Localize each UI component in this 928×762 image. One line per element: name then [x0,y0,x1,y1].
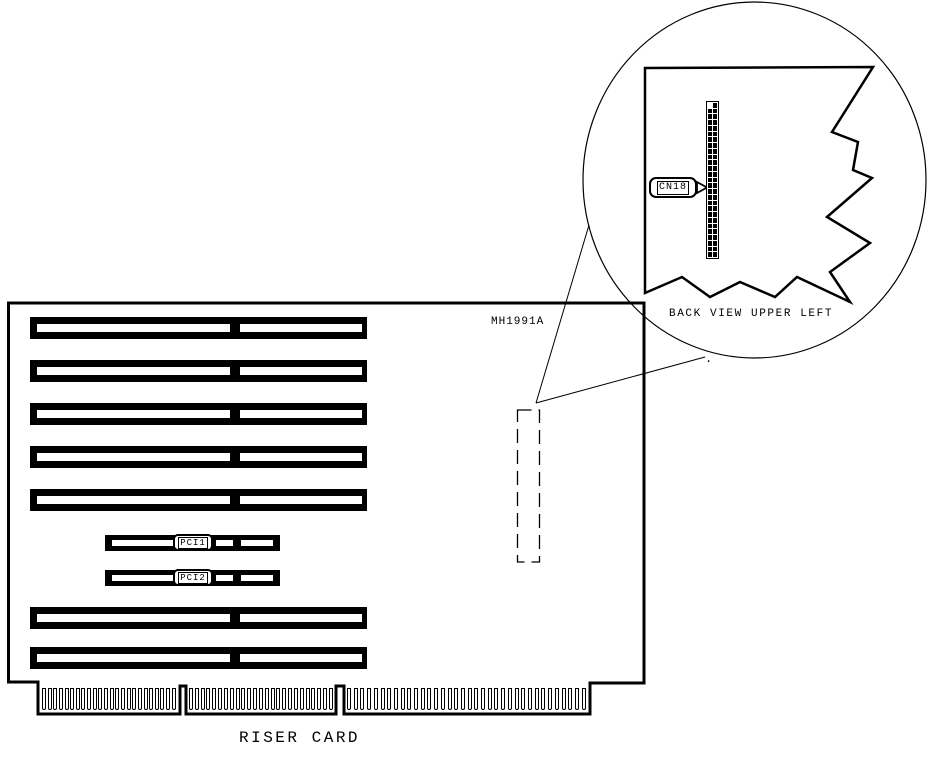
edge-finger [212,688,216,710]
pin-cell [713,178,717,183]
edge-finger [259,688,263,710]
edge-finger [448,688,452,710]
edge-finger [354,688,358,710]
pin-cell [708,235,712,240]
pin-cell [713,229,717,234]
pin-cell [713,224,717,229]
edge-finger [582,688,586,710]
edge-finger [367,688,371,710]
edge-finger [104,688,108,710]
edge-finger [121,688,125,710]
edge-finger [434,688,438,710]
edge-finger [288,688,292,710]
edge-finger [93,688,97,710]
cn18-connector-pins [706,101,719,259]
cn18-label-tag: CN18 [649,177,697,198]
pin-cell [708,218,712,223]
edge-finger [488,688,492,710]
pin-cell [713,160,717,165]
pin-cell [713,183,717,188]
pin-cell [708,166,712,171]
pin-cell [708,155,712,160]
edge-finger [166,688,170,710]
pci-slot-strip [216,540,233,546]
isa-slot-7 [30,647,367,669]
edge-finger [115,688,119,710]
edge-finger [427,688,431,710]
pci1-label: PCI1 [178,537,208,549]
edge-finger [421,688,425,710]
edge-finger [172,688,176,710]
edge-finger [323,688,327,710]
edge-finger [501,688,505,710]
edge-finger [481,688,485,710]
pin-cell [713,132,717,137]
edge-finger [110,688,114,710]
edge-finger [374,688,378,710]
edge-finger [468,688,472,710]
edge-connector-group-3 [347,688,586,710]
pci1-label-tag: PCI1 [173,534,213,551]
edge-finger [138,688,142,710]
edge-connector-group-2 [189,688,333,710]
pin-cell [708,247,712,252]
isa-slot-5 [30,489,367,511]
edge-finger [347,688,351,710]
edge-finger [521,688,525,710]
edge-finger [306,688,310,710]
edge-finger [206,688,210,710]
edge-finger [132,688,136,710]
pin-cell [713,103,717,108]
pin-cell [708,201,712,206]
edge-finger [241,688,245,710]
edge-finger [48,688,52,710]
isa-slot-3 [30,403,367,425]
edge-finger [535,688,539,710]
pin-cell [708,252,712,257]
pci-slot-strip [112,575,173,581]
edge-finger [276,688,280,710]
pin-cell [708,143,712,148]
isa-slot-1 [30,317,367,339]
edge-finger [294,688,298,710]
pin-cell [713,252,717,257]
pin-cell [713,201,717,206]
pin-cell [713,143,717,148]
pin-cell [713,189,717,194]
pin-cell [713,149,717,154]
pin-cell [708,183,712,188]
edge-finger [271,688,275,710]
pci2-label: PCI2 [178,572,208,584]
edge-finger [230,688,234,710]
diagram-title: RISER CARD [239,729,360,747]
pin-cell [708,229,712,234]
edge-finger [555,688,559,710]
pci-slot-1: PCI1 [105,535,280,551]
edge-finger [541,688,545,710]
pin-cell [713,120,717,125]
edge-finger [160,688,164,710]
edge-finger [87,688,91,710]
pin-cell [708,206,712,211]
edge-finger [568,688,572,710]
edge-finger [494,688,498,710]
edge-finger [76,688,80,710]
edge-finger [575,688,579,710]
board-part-number: MH1991A [491,316,544,328]
edge-finger [149,688,153,710]
pin-cell [708,109,712,114]
pin-cell [708,137,712,142]
edge-finger [414,688,418,710]
edge-finger [65,688,69,710]
edge-finger [401,688,405,710]
pin-cell [708,114,712,119]
edge-finger [441,688,445,710]
pin-cell [713,247,717,252]
edge-finger [98,688,102,710]
pin-cell [713,155,717,160]
edge-finger [528,688,532,710]
pin-cell [708,195,712,200]
edge-finger [360,688,364,710]
pin-cell [713,212,717,217]
edge-finger [300,688,304,710]
isa-slot-2 [30,360,367,382]
pci-slot-strip [241,575,273,581]
edge-finger [247,688,251,710]
pin-cell [713,126,717,131]
edge-finger [59,688,63,710]
isa-slot-4 [30,446,367,468]
pin-cell [708,178,712,183]
pci-slot-strip [241,540,273,546]
edge-finger [407,688,411,710]
edge-finger [189,688,193,710]
edge-finger [282,688,286,710]
edge-finger [265,688,269,710]
edge-finger [42,688,46,710]
edge-finger [474,688,478,710]
pin-cell [708,224,712,229]
edge-finger [548,688,552,710]
edge-finger [224,688,228,710]
pin-cell [713,241,717,246]
pin-cell [713,172,717,177]
pin-cell [708,120,712,125]
pin-cell [713,137,717,142]
edge-finger [454,688,458,710]
edge-finger [461,688,465,710]
edge-finger [329,688,333,710]
edge-finger [127,688,131,710]
inset-caption: BACK VIEW UPPER LEFT [669,308,833,320]
edge-finger [236,688,240,710]
edge-connector-group-1 [42,688,176,710]
pci2-label-tag: PCI2 [173,569,213,586]
edge-finger [53,688,57,710]
pin-cell [708,241,712,246]
edge-finger [387,688,391,710]
edge-finger [81,688,85,710]
edge-finger [317,688,321,710]
edge-finger [562,688,566,710]
edge-finger [515,688,519,710]
pin-cell [713,114,717,119]
pin-cell [708,160,712,165]
edge-finger [201,688,205,710]
edge-finger [70,688,74,710]
pin-cell [708,126,712,131]
pin-cell [708,132,712,137]
pin-cell [713,218,717,223]
edge-finger [381,688,385,710]
pin-cell [713,195,717,200]
stray-dot: . [705,352,712,366]
isa-slot-6 [30,607,367,629]
cn18-label: CN18 [657,181,689,195]
pci-slot-strip [112,540,173,546]
pci-slot-2: PCI2 [105,570,280,586]
pin-cell [708,149,712,154]
pin-cell [713,166,717,171]
pci-slot-strip [216,575,233,581]
pin-cell [708,172,712,177]
edge-finger [155,688,159,710]
pin-cell [713,235,717,240]
pin-cell [713,109,717,114]
edge-finger [195,688,199,710]
edge-finger [144,688,148,710]
edge-finger [311,688,315,710]
riser-card-diagram: PCI1 PCI2 CN18 MH1991A BACK VIEW UPPER L… [0,0,928,762]
edge-finger [253,688,257,710]
pin-cell [713,206,717,211]
pin-cell [708,103,712,108]
pin-cell [708,212,712,217]
edge-finger [218,688,222,710]
pin-cell [708,189,712,194]
edge-finger [394,688,398,710]
edge-finger [508,688,512,710]
